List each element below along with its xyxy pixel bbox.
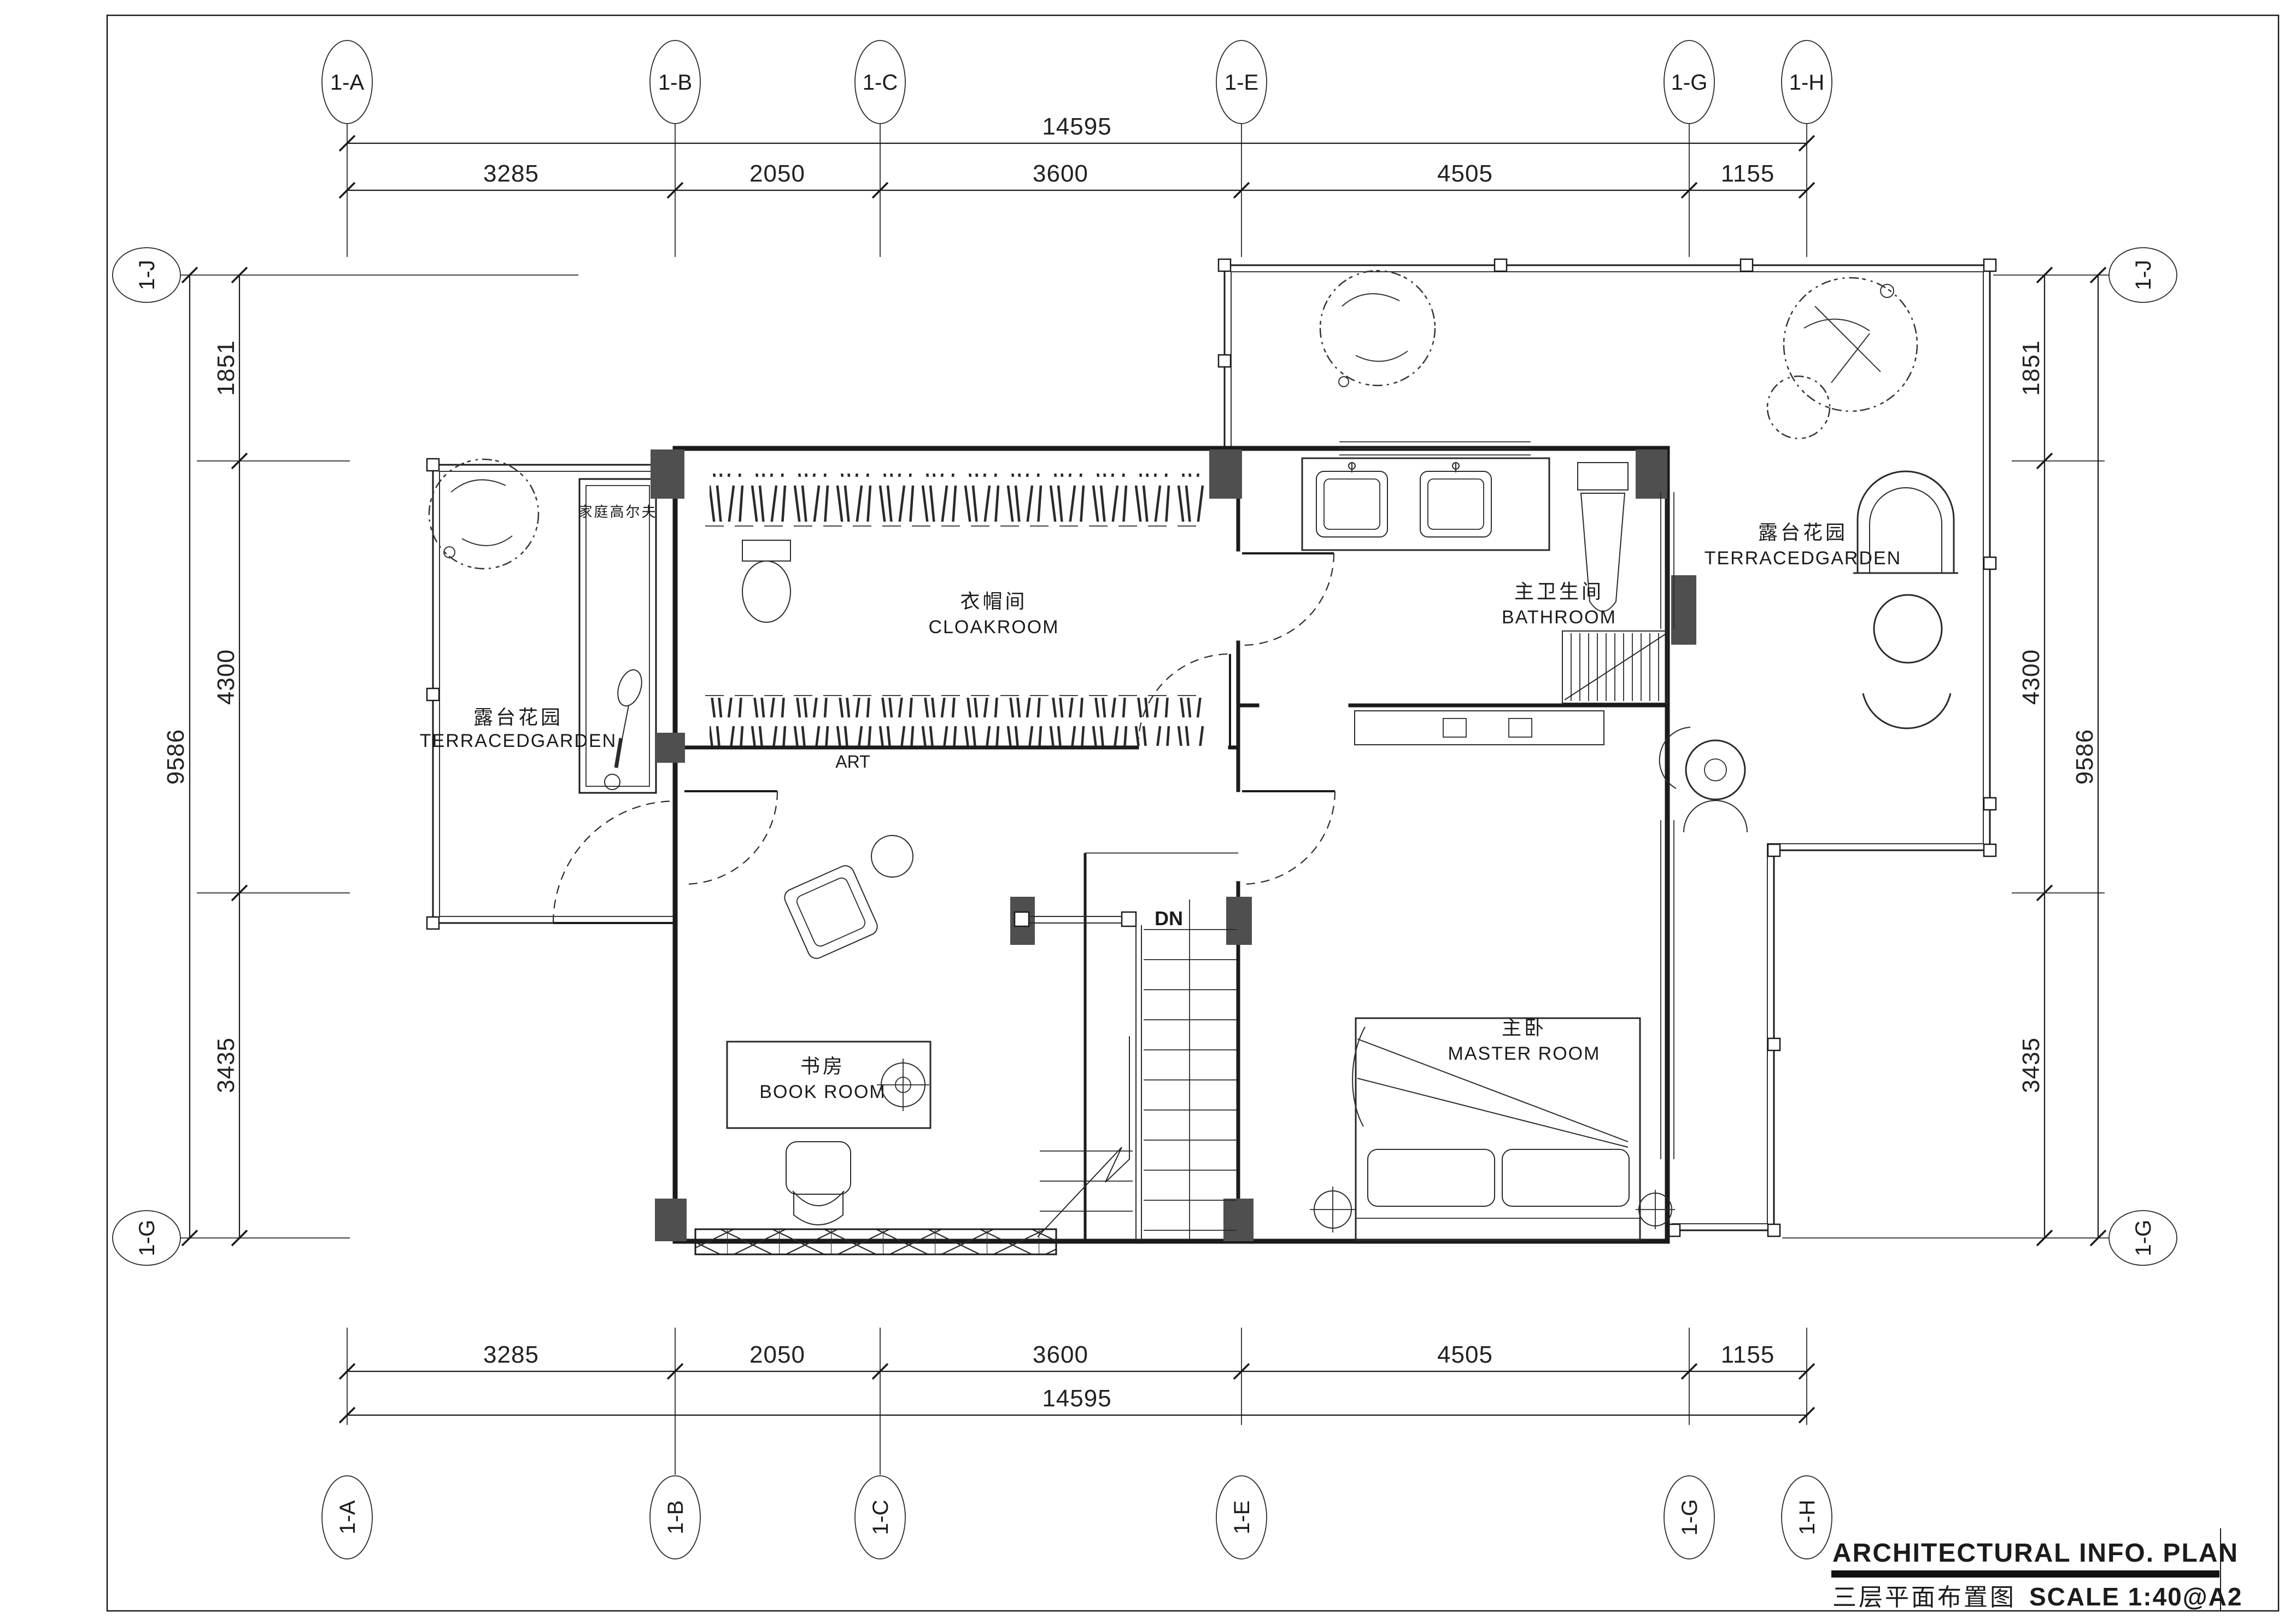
dim-seg: 3435 [213,1037,239,1093]
terrace-right-label-en: TERRACEDGARDEN [1705,548,1901,569]
dim-seg: 4505 [1437,160,1493,187]
bookroom-label-en: BOOK ROOM [759,1082,886,1102]
axis-label: 1-C [863,71,898,95]
art-label: ART [835,752,870,772]
title-underline [1831,1570,2219,1578]
dim-seg: 2050 [749,160,805,187]
terrace-right: 露台花园 TERRACEDGARDEN [1219,259,1996,1236]
sink-icon [1420,462,1491,537]
axis-label: 1-G [2131,1220,2156,1257]
stair-treads [1040,930,1237,1230]
bathroom-label-cn: 主卫生间 [1514,580,1604,603]
sheet-scale: SCALE 1:40@A2 [2029,1582,2242,1611]
axis-bubble-top-1e: 1-E [1216,40,1267,257]
room-cloakroom: 衣帽间 CLOAKROOM ART [705,474,1230,772]
down-label: DN [1155,907,1183,930]
dim-total-left: 9586 [162,729,189,785]
sheet-title-cn: 三层平面布置图 [1832,1584,2016,1611]
tree-icon [1767,278,1917,439]
master-label-cn: 主卧 [1502,1017,1547,1039]
axis-label: 1-H [1789,71,1824,95]
dim-seg: 3285 [483,160,539,187]
master-door [1242,791,1335,884]
side-table [871,836,913,877]
hanger-rail [710,474,1204,522]
dimension-left: 9586 1851 4300 3435 [162,267,350,1246]
dim-seg: 3285 [483,1341,539,1368]
desk-chair-icon [786,1142,851,1225]
cloakroom-label-en: CLOAKROOM [928,617,1059,638]
staircase: DN [1015,899,1237,1240]
room-master: 主卧 MASTER ROOM [1242,711,1747,1240]
dim-seg: 4505 [1437,1341,1493,1368]
axis-bubble-top-1g: 1-G [1664,40,1714,257]
outdoor-table [1874,595,1942,663]
axis-label: 1-J [2131,260,2156,290]
dim-seg: 1155 [1721,1341,1775,1368]
break-line [1038,1036,1129,1237]
axis-label: 1-A [330,71,365,95]
axis-bubble-bottom-1g: 1-G [1664,1476,1714,1559]
axis-label: 1-E [1230,1500,1254,1534]
bathroom-label-en: BATHROOM [1502,607,1616,628]
dim-total-bottom: 14595 [1042,1385,1111,1412]
tree-icon [429,459,538,569]
tv-cabinet [1355,711,1604,745]
bookroom-door [684,791,777,884]
terrace-door [553,801,675,923]
bathroom-door [1242,553,1334,645]
floor-plan-sheet: 1-A 1-B 1-C 1-E 1-G 1-H [0,0,2296,1624]
axis-bubbles-bottom: 1-A 1-B 1-C 1-E 1-G 1-H [322,1476,1832,1559]
room-bookroom: 书房 BOOK ROOM [684,791,930,1225]
axis-bubbles-right: 1-J 1-G [1782,248,2177,1265]
nightstand-lamp-icon [1310,1187,1356,1232]
dimension-right: 1851 4300 3435 9586 [2012,267,2106,1246]
dimension-bottom-overall: 14595 [339,1385,1814,1423]
windows [695,442,1674,1254]
axis-label: 1-J [135,260,159,290]
axis-bubble-bottom-1a: 1-A [322,1476,372,1559]
axis-label: 1-G [1678,1499,1702,1536]
desk-globe-icon [877,1059,929,1111]
cloakroom-label-cn: 衣帽间 [960,590,1027,612]
bookroom-label-cn: 书房 [800,1055,845,1077]
terrace-left: 露台花园 TERRACEDGARDEN 家庭高尔夫 [420,459,675,929]
hanger-rail [710,698,1204,746]
axis-label: 1-G [1671,71,1708,95]
axis-bubble-top-1b: 1-B [650,40,700,257]
axis-label: 1-B [658,71,692,95]
axis-bubble-top-1h: 1-H [1782,40,1832,257]
railing-posts [1219,259,1996,1236]
dim-seg: 3600 [1033,1341,1088,1368]
axis-label: 1-B [664,1500,688,1534]
axis-bubble-bottom-1b: 1-B [650,1476,700,1559]
golf-label: 家庭高尔夫 [578,504,657,520]
bistro-set [1660,727,1747,832]
dimension-top-overall: 14595 [339,113,1814,151]
dim-seg: 3435 [2018,1037,2045,1093]
lounge-chair-icon [782,863,880,961]
axis-label: 1-C [869,1500,893,1535]
master-label-en: MASTER ROOM [1448,1043,1601,1064]
dim-seg: 4300 [213,649,239,705]
axis-label: 1-H [1795,1500,1819,1535]
dim-seg: 3600 [1033,160,1088,187]
dim-total-top: 14595 [1042,113,1111,140]
axis-bubbles-top: 1-A 1-B 1-C 1-E 1-G 1-H [322,40,1832,257]
axis-bubble-bottom-1h: 1-H [1782,1476,1832,1559]
dim-seg: 4300 [2018,649,2045,705]
axis-bubble-top-1c: 1-C [855,40,905,257]
dim-seg: 1851 [213,340,239,396]
title-block: ARCHITECTURAL INFO. PLAN 三层平面布置图 SCALE 1… [1831,1528,2242,1611]
axis-bubble-bottom-1c: 1-C [855,1476,905,1559]
dim-total-right: 9586 [2071,729,2098,785]
building-walls [675,448,1667,1241]
dimension-top-segments: 3285 2050 3600 4505 1155 [339,160,1814,198]
axis-label: 1-A [336,1500,360,1535]
roof-ladder [1562,631,1667,703]
axis-bubble-bottom-1e: 1-E [1216,1476,1267,1559]
sheet-title-en: ARCHITECTURAL INFO. PLAN [1832,1539,2239,1568]
toilet-icon [742,540,790,622]
terrace-left-label-en: TERRACEDGARDEN [420,731,617,751]
golf-club-icon [605,667,646,790]
axis-label: 1-G [135,1220,159,1257]
sink-icon [1316,462,1387,537]
axis-label: 1-E [1225,71,1258,95]
structural-columns [651,449,1696,1241]
dimension-bottom-segments: 3285 2050 3600 4505 1155 [339,1341,1814,1379]
terrace-left-label-cn: 露台花园 [473,706,563,728]
tree-icon [1320,271,1435,387]
room-bathroom: 主卫生间 BATHROOM [1242,458,1667,703]
terrace-right-label-cn: 露台花园 [1758,521,1848,544]
outdoor-chair [1863,693,1951,728]
dim-seg: 1155 [1721,160,1775,187]
axis-bubble-top-1a: 1-A [322,40,372,257]
dim-seg: 2050 [749,1341,805,1368]
window-band [695,1229,1056,1254]
dim-seg: 1851 [2018,340,2045,396]
